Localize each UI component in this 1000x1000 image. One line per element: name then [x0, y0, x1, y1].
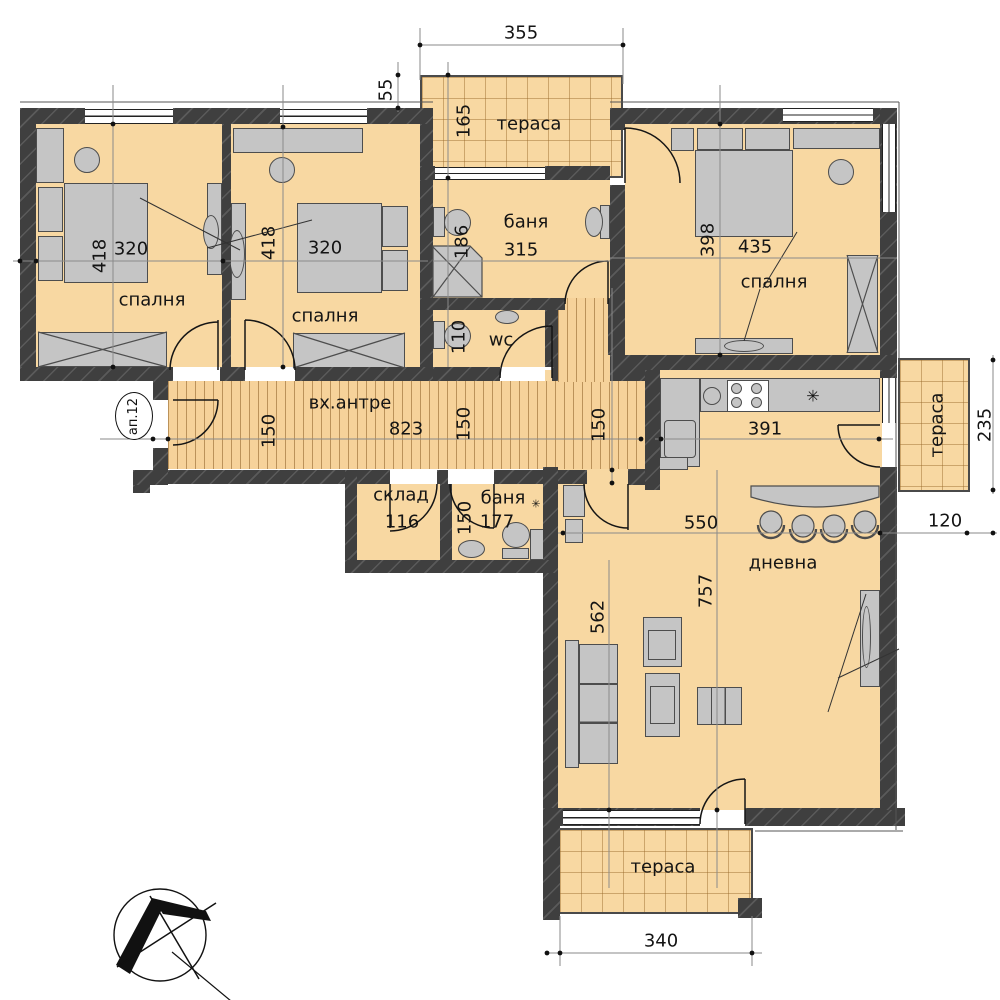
room-label-bedroom-1: спалня — [119, 290, 186, 311]
dim-hall-width-b: 150 — [454, 407, 475, 441]
facade-lines — [20, 102, 903, 831]
room-label-storage: склад — [373, 485, 429, 506]
dim-bedroom-2-depth: 418 — [259, 226, 280, 260]
room-label-bath-main: баня — [504, 212, 549, 233]
dim-hall-length: 823 — [389, 419, 423, 440]
dim-terrace-top-width: 355 — [504, 23, 538, 44]
dim-hall-width-a: 150 — [259, 414, 280, 448]
room-label-terrace-top: тераса — [497, 114, 562, 135]
boiler-icon: ✳ — [531, 498, 540, 511]
room-label-bedroom-2: спалня — [292, 306, 359, 327]
dim-terrace-right-depth: 235 — [975, 408, 996, 442]
dim-bath-main-width: 315 — [504, 240, 538, 261]
dim-corridor-width: 150 — [589, 408, 610, 442]
bar-counter — [751, 486, 879, 542]
dim-living-width: 550 — [684, 513, 718, 534]
room-label-terrace-right: тераса — [927, 393, 948, 458]
dim-terrace-right-width: 120 — [928, 511, 962, 532]
dim-bath-small-inner: 150 — [455, 501, 476, 535]
dim-kitchen-width: 391 — [748, 419, 782, 440]
room-label-bedroom-3: спалня — [741, 272, 808, 293]
apartment-badge: ап.12 — [115, 392, 153, 440]
apartment-badge-label: ап.12 — [127, 397, 142, 434]
dim-bedroom-1-depth: 418 — [90, 239, 111, 273]
room-label-wc: wc — [489, 330, 514, 351]
dim-bath-small-width: 177 — [480, 512, 514, 533]
dim-terrace-bottom-width: 340 — [644, 931, 678, 952]
dim-living-length: 757 — [696, 574, 717, 608]
dim-bedroom-1-width: 320 — [114, 239, 148, 260]
dim-bedroom-2-width: 320 — [308, 238, 342, 259]
fridge-icon: ✳ — [806, 387, 819, 406]
compass-icon — [114, 889, 237, 1000]
dim-bedroom-3-width: 435 — [738, 237, 772, 258]
room-label-bath-small: баня — [481, 488, 526, 509]
dim-terrace-top-depth: 165 — [454, 104, 475, 138]
dim-terrace-top-offset: 55 — [376, 79, 397, 102]
room-label-terrace-bottom: тераса — [631, 857, 696, 878]
dim-bedroom-3-depth: 398 — [698, 223, 719, 257]
room-label-living: дневна — [749, 553, 818, 574]
floor-plan: тераса 355 55 165 спалня 418 320 спалня … — [0, 0, 1000, 1000]
dim-bath-main-inner: 186 — [452, 225, 473, 259]
room-label-hall: вх.антре — [309, 393, 392, 414]
dim-storage-width: 116 — [385, 512, 419, 533]
dim-living-side: 562 — [588, 600, 609, 634]
dim-wc-inner: 110 — [449, 320, 470, 354]
